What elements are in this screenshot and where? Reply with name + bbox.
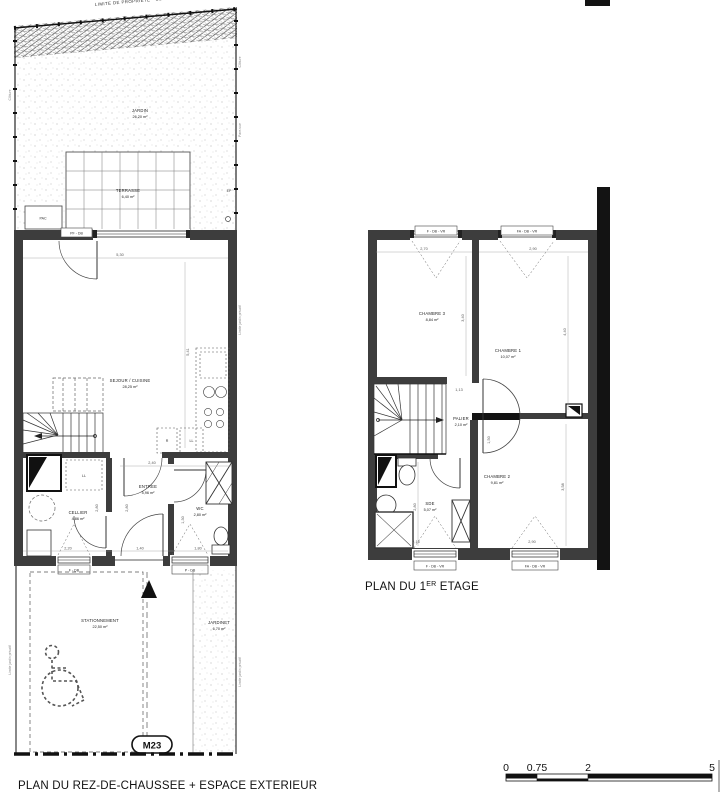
- first-caption-prefix: PLAN DU 1: [365, 581, 426, 593]
- ff-wall-bottom: [368, 548, 597, 560]
- stairs-ground: [23, 378, 103, 457]
- ff-window-bottom-right-label: FA - DB - VR: [525, 565, 546, 569]
- floorplan-page: LIMITE DE PROPRIETE - CLOTURE JARDIN 26,…: [0, 0, 725, 800]
- dim-cellier-w: 2,20: [64, 547, 71, 551]
- dim-wc-w: 1,80: [194, 547, 201, 551]
- sde-area: 5,07 m²: [424, 508, 438, 512]
- door-gap-cellier: [106, 512, 112, 550]
- appliance-washer-kitchen: LL: [180, 428, 203, 453]
- parking-outline: [30, 572, 143, 752]
- stairs-first: [374, 384, 446, 454]
- side-label-limite-right: Limite jardin privatif: [238, 305, 242, 334]
- wall-ch3-bottom: [368, 377, 447, 384]
- washer-label-cellier: LL: [82, 474, 86, 478]
- window-bottom-left: F - DB: [56, 524, 92, 574]
- dim-entree-h: 2,80: [125, 504, 129, 511]
- wall-sejour-b: [162, 452, 237, 458]
- dim-cellier-h: 2,80: [95, 504, 99, 511]
- side-label-limite-left: Limite jardin privatif: [8, 645, 12, 674]
- ff-window-bottom-left-label: F - DB - VR: [426, 565, 445, 569]
- door-arc-sde: [430, 458, 460, 488]
- first-caption-suffix: ETAGE: [436, 581, 479, 593]
- m23-badge: M23: [132, 736, 172, 753]
- ep-label: EP: [227, 189, 232, 193]
- water-heater-icon: [29, 495, 55, 521]
- wall-right: [228, 230, 237, 566]
- chambre3-area: 8,84 m²: [426, 318, 440, 322]
- jardinet-stipple: [193, 570, 236, 754]
- wall-ch3-ch1: [472, 240, 479, 383]
- jardinet-label: JARDINET: [208, 620, 230, 625]
- side-label-parevue-right: Pare-vue: [238, 123, 242, 137]
- appliance-fridge: R: [157, 428, 177, 453]
- entrance-arrow-icon: [141, 580, 157, 598]
- wc-label: WC: [196, 506, 203, 511]
- wall-palier-stub: [472, 413, 520, 420]
- dim-ch1-w: 2,90: [529, 247, 536, 251]
- door-gap-wc: [168, 464, 174, 504]
- stationnement-area: 22,50 m²: [93, 625, 109, 629]
- entrance-door: [115, 514, 163, 566]
- scale-seg-2: [537, 779, 588, 782]
- chambre2-label: CHAMBRE 2: [484, 474, 511, 479]
- jardin-label: JARDIN: [132, 108, 148, 113]
- toilet-ground: [212, 527, 230, 554]
- ff-wall-top: [368, 230, 597, 240]
- terrasse-area: 6,40 m²: [122, 195, 136, 199]
- chambre1-area: 10,07 m²: [501, 355, 517, 359]
- neighbor-wall-mark: [585, 0, 610, 6]
- exterior-zone: STATIONNEMENT 22,50 m² JARDINET 6,70 m² …: [8, 566, 242, 754]
- wall-ch2-left: [470, 420, 478, 548]
- dim-ch3-w: 2,70: [420, 247, 427, 251]
- first-caption: PLAN DU 1ER ETAGE: [365, 581, 479, 593]
- scale-seg-1: [506, 774, 537, 779]
- door-arc-sejour: [59, 241, 97, 279]
- cellier-label: CELLIER: [69, 510, 88, 515]
- scale-tick-0: 0: [503, 762, 509, 774]
- wc-area: 2,80 m²: [194, 513, 208, 517]
- scale-tick-2: 2: [585, 762, 591, 774]
- floorplan-canvas: LIMITE DE PROPRIETE - CLOTURE JARDIN 26,…: [0, 0, 725, 800]
- dim-palier-w: 1,13: [455, 388, 462, 392]
- dim-door-w: 1,40: [136, 547, 143, 551]
- duct-shaft-first: [452, 500, 470, 542]
- sde-fixtures: [375, 455, 416, 548]
- first-floor-plan: F - DB - VR FA - DB - VR: [365, 0, 610, 593]
- kitchen-counter: [196, 348, 229, 452]
- dim-wc-h: 1,30: [181, 516, 185, 523]
- dim-ch2-w: 2,90: [528, 540, 535, 544]
- fridge-label: R: [166, 439, 169, 443]
- scale-seg-3: [588, 774, 712, 779]
- chambre3-label: CHAMBRE 3: [419, 311, 446, 316]
- wheelchair-icon: [42, 646, 84, 707]
- dim-entree-w: 2,40: [148, 461, 155, 465]
- sde-label: SDE: [425, 501, 434, 506]
- dim-ch2-h: 3,58: [561, 483, 565, 490]
- jardinet-area: 6,70 m²: [213, 627, 227, 631]
- stationnement-label: STATIONNEMENT: [81, 618, 119, 623]
- washer-label-kitchen: LL: [190, 439, 194, 443]
- dim-sde-w: 2,16: [412, 540, 419, 544]
- chambre2-area: 9,81 m²: [491, 481, 505, 485]
- window-bottom-right: P - DB: [170, 524, 210, 574]
- ground-caption: PLAN DU REZ-DE-CHAUSSEE + ESPACE EXTERIE…: [18, 780, 317, 792]
- pac-label: PAC: [39, 217, 47, 221]
- scale-tick-5: 5: [709, 762, 715, 774]
- cellier-area: 4,86 m²: [72, 517, 86, 521]
- window-top-label: PF - DB: [70, 232, 83, 236]
- terrasse-label: TERRASSE: [116, 188, 140, 193]
- toilet-bowl: [399, 465, 415, 485]
- garden-zone: LIMITE DE PROPRIETE - CLOTURE JARDIN 26,…: [8, 0, 242, 335]
- dim-ch1-h: 4,40: [563, 328, 567, 335]
- entree-area: 5,96 m²: [142, 491, 156, 495]
- entree-label: ENTREE: [139, 484, 157, 489]
- ff-window-top-right-label: FA - DB - VR: [517, 230, 538, 234]
- jardin-area: 26,20 m²: [133, 115, 149, 119]
- palier-area: 2,10 m²: [455, 423, 469, 427]
- wall-left: [14, 230, 23, 566]
- first-caption-sup: ER: [426, 581, 436, 588]
- ff-wall-right: [588, 230, 597, 560]
- ff-window-top-left-label: F - DB - VR: [427, 230, 446, 234]
- electrical-panel-icon: [566, 404, 582, 417]
- m23-badge-label: M23: [143, 741, 161, 752]
- sejour-area: 28,25 m²: [123, 385, 139, 389]
- dim-sejour-h: 5,41: [186, 348, 190, 355]
- sejour-label: SEJOUR / CUISINE: [110, 378, 151, 383]
- property-boundary-label: LIMITE DE PROPRIETE - CLOTURE: [95, 0, 180, 7]
- dim-ch3-h: 3,40: [461, 314, 465, 321]
- party-wall: [597, 187, 610, 570]
- chambre1-label: CHAMBRE 1: [495, 348, 522, 353]
- scale-bar: 0 0.75 2 5: [503, 760, 719, 792]
- palier-label: PALIER: [453, 416, 469, 421]
- scale-tick-075: 0.75: [527, 762, 548, 774]
- cellier-fixtures: LL: [27, 455, 102, 556]
- duct-shaft-ground: [206, 462, 232, 504]
- side-label-cloture-right: Clôture: [238, 56, 242, 67]
- dim-sde-h: 2,80: [413, 503, 417, 510]
- dwelling-ground: PF - DB 5,30 5,41 SEJOUR / CUISINE 28,25…: [14, 228, 237, 574]
- ground-floor-plan: LIMITE DE PROPRIETE - CLOTURE JARDIN 26,…: [8, 0, 317, 792]
- dim-sejour-w: 5,30: [116, 253, 123, 257]
- dim-palier-h: 1,50: [487, 436, 491, 443]
- door-arc-wc: [174, 470, 206, 502]
- side-label-limite-right2: Limite jardin privatif: [238, 657, 242, 686]
- side-label-cloture-left: Clôture: [8, 89, 12, 100]
